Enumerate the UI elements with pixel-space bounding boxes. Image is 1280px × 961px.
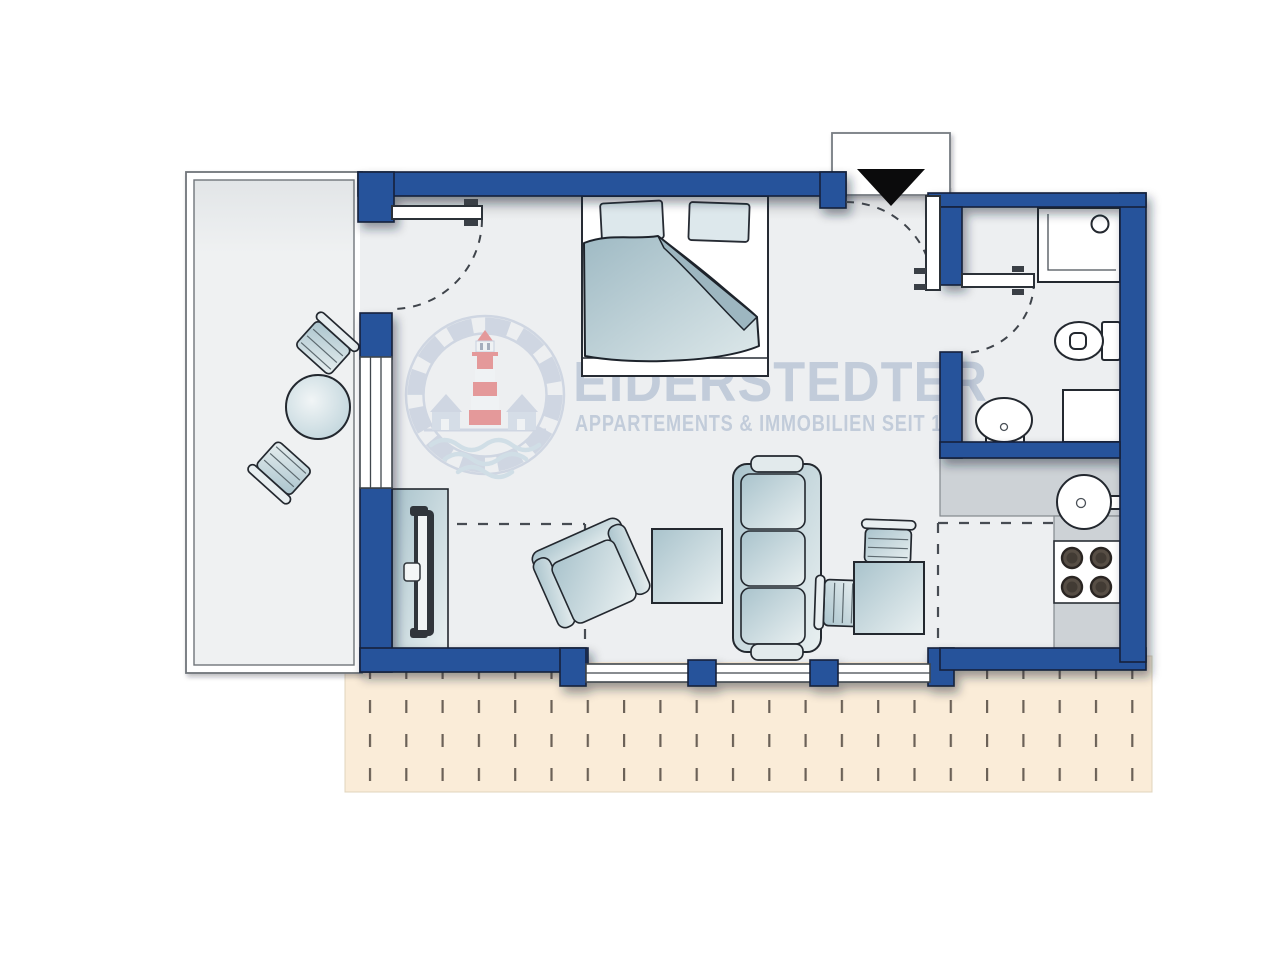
terrace-window-band bbox=[586, 664, 930, 682]
balcony-window bbox=[360, 357, 392, 488]
dining-chair bbox=[814, 575, 859, 630]
sofa-cushion bbox=[741, 531, 805, 586]
door-handle bbox=[464, 220, 478, 226]
wall-entrance-jamb bbox=[820, 172, 846, 208]
sofa-armrest bbox=[751, 456, 803, 472]
wall-right bbox=[1120, 193, 1146, 662]
stove bbox=[1054, 541, 1120, 603]
window-mullion bbox=[688, 660, 716, 686]
wall-left-lower bbox=[360, 488, 392, 672]
toilet bbox=[1055, 322, 1120, 360]
balcony-table bbox=[286, 375, 350, 439]
double-bed bbox=[582, 196, 768, 376]
wall-top bbox=[358, 172, 846, 196]
wall-top-left-corner bbox=[358, 172, 394, 222]
door-handle bbox=[464, 199, 478, 205]
pillow bbox=[688, 202, 749, 242]
pillow bbox=[600, 200, 664, 241]
floor-plan: EIDERSTEDTER APPARTEMENTS & IMMOBILIEN S… bbox=[0, 0, 1280, 961]
door-handle bbox=[914, 284, 926, 290]
dining-table bbox=[854, 562, 924, 634]
coffee-table bbox=[652, 529, 722, 603]
wall-bathroom-top bbox=[928, 193, 1146, 207]
tv-stand-knob bbox=[404, 563, 420, 581]
watermark-tagline-text: APPARTEMENTS & IMMOBILIEN SEIT 19 bbox=[575, 410, 953, 436]
door-handle bbox=[1012, 266, 1024, 272]
wall-bathroom-left-upper bbox=[940, 207, 962, 285]
wall-left-mid bbox=[360, 313, 392, 359]
door-leaf bbox=[392, 206, 482, 219]
wall-bathroom-bottom bbox=[940, 442, 1120, 458]
shower bbox=[1038, 208, 1120, 282]
tv-sideboard bbox=[392, 489, 448, 649]
sofa bbox=[733, 456, 821, 660]
wall-bottom-kitchen bbox=[940, 648, 1146, 670]
door-leaf bbox=[926, 196, 940, 290]
dining-chair bbox=[860, 519, 915, 564]
wall-bottom-step-left bbox=[560, 648, 586, 686]
sofa-cushion bbox=[741, 588, 805, 644]
sofa-armrest bbox=[751, 644, 803, 660]
sofa-cushion bbox=[741, 474, 805, 529]
door-leaf bbox=[962, 274, 1034, 287]
bathroom-washer bbox=[1063, 390, 1120, 442]
wall-bottom-left bbox=[360, 648, 588, 672]
door-handle bbox=[1012, 289, 1024, 295]
floor-plan-page: EIDERSTEDTER APPARTEMENTS & IMMOBILIEN S… bbox=[0, 0, 1280, 961]
window-mullion bbox=[810, 660, 838, 686]
door-handle bbox=[914, 268, 926, 274]
